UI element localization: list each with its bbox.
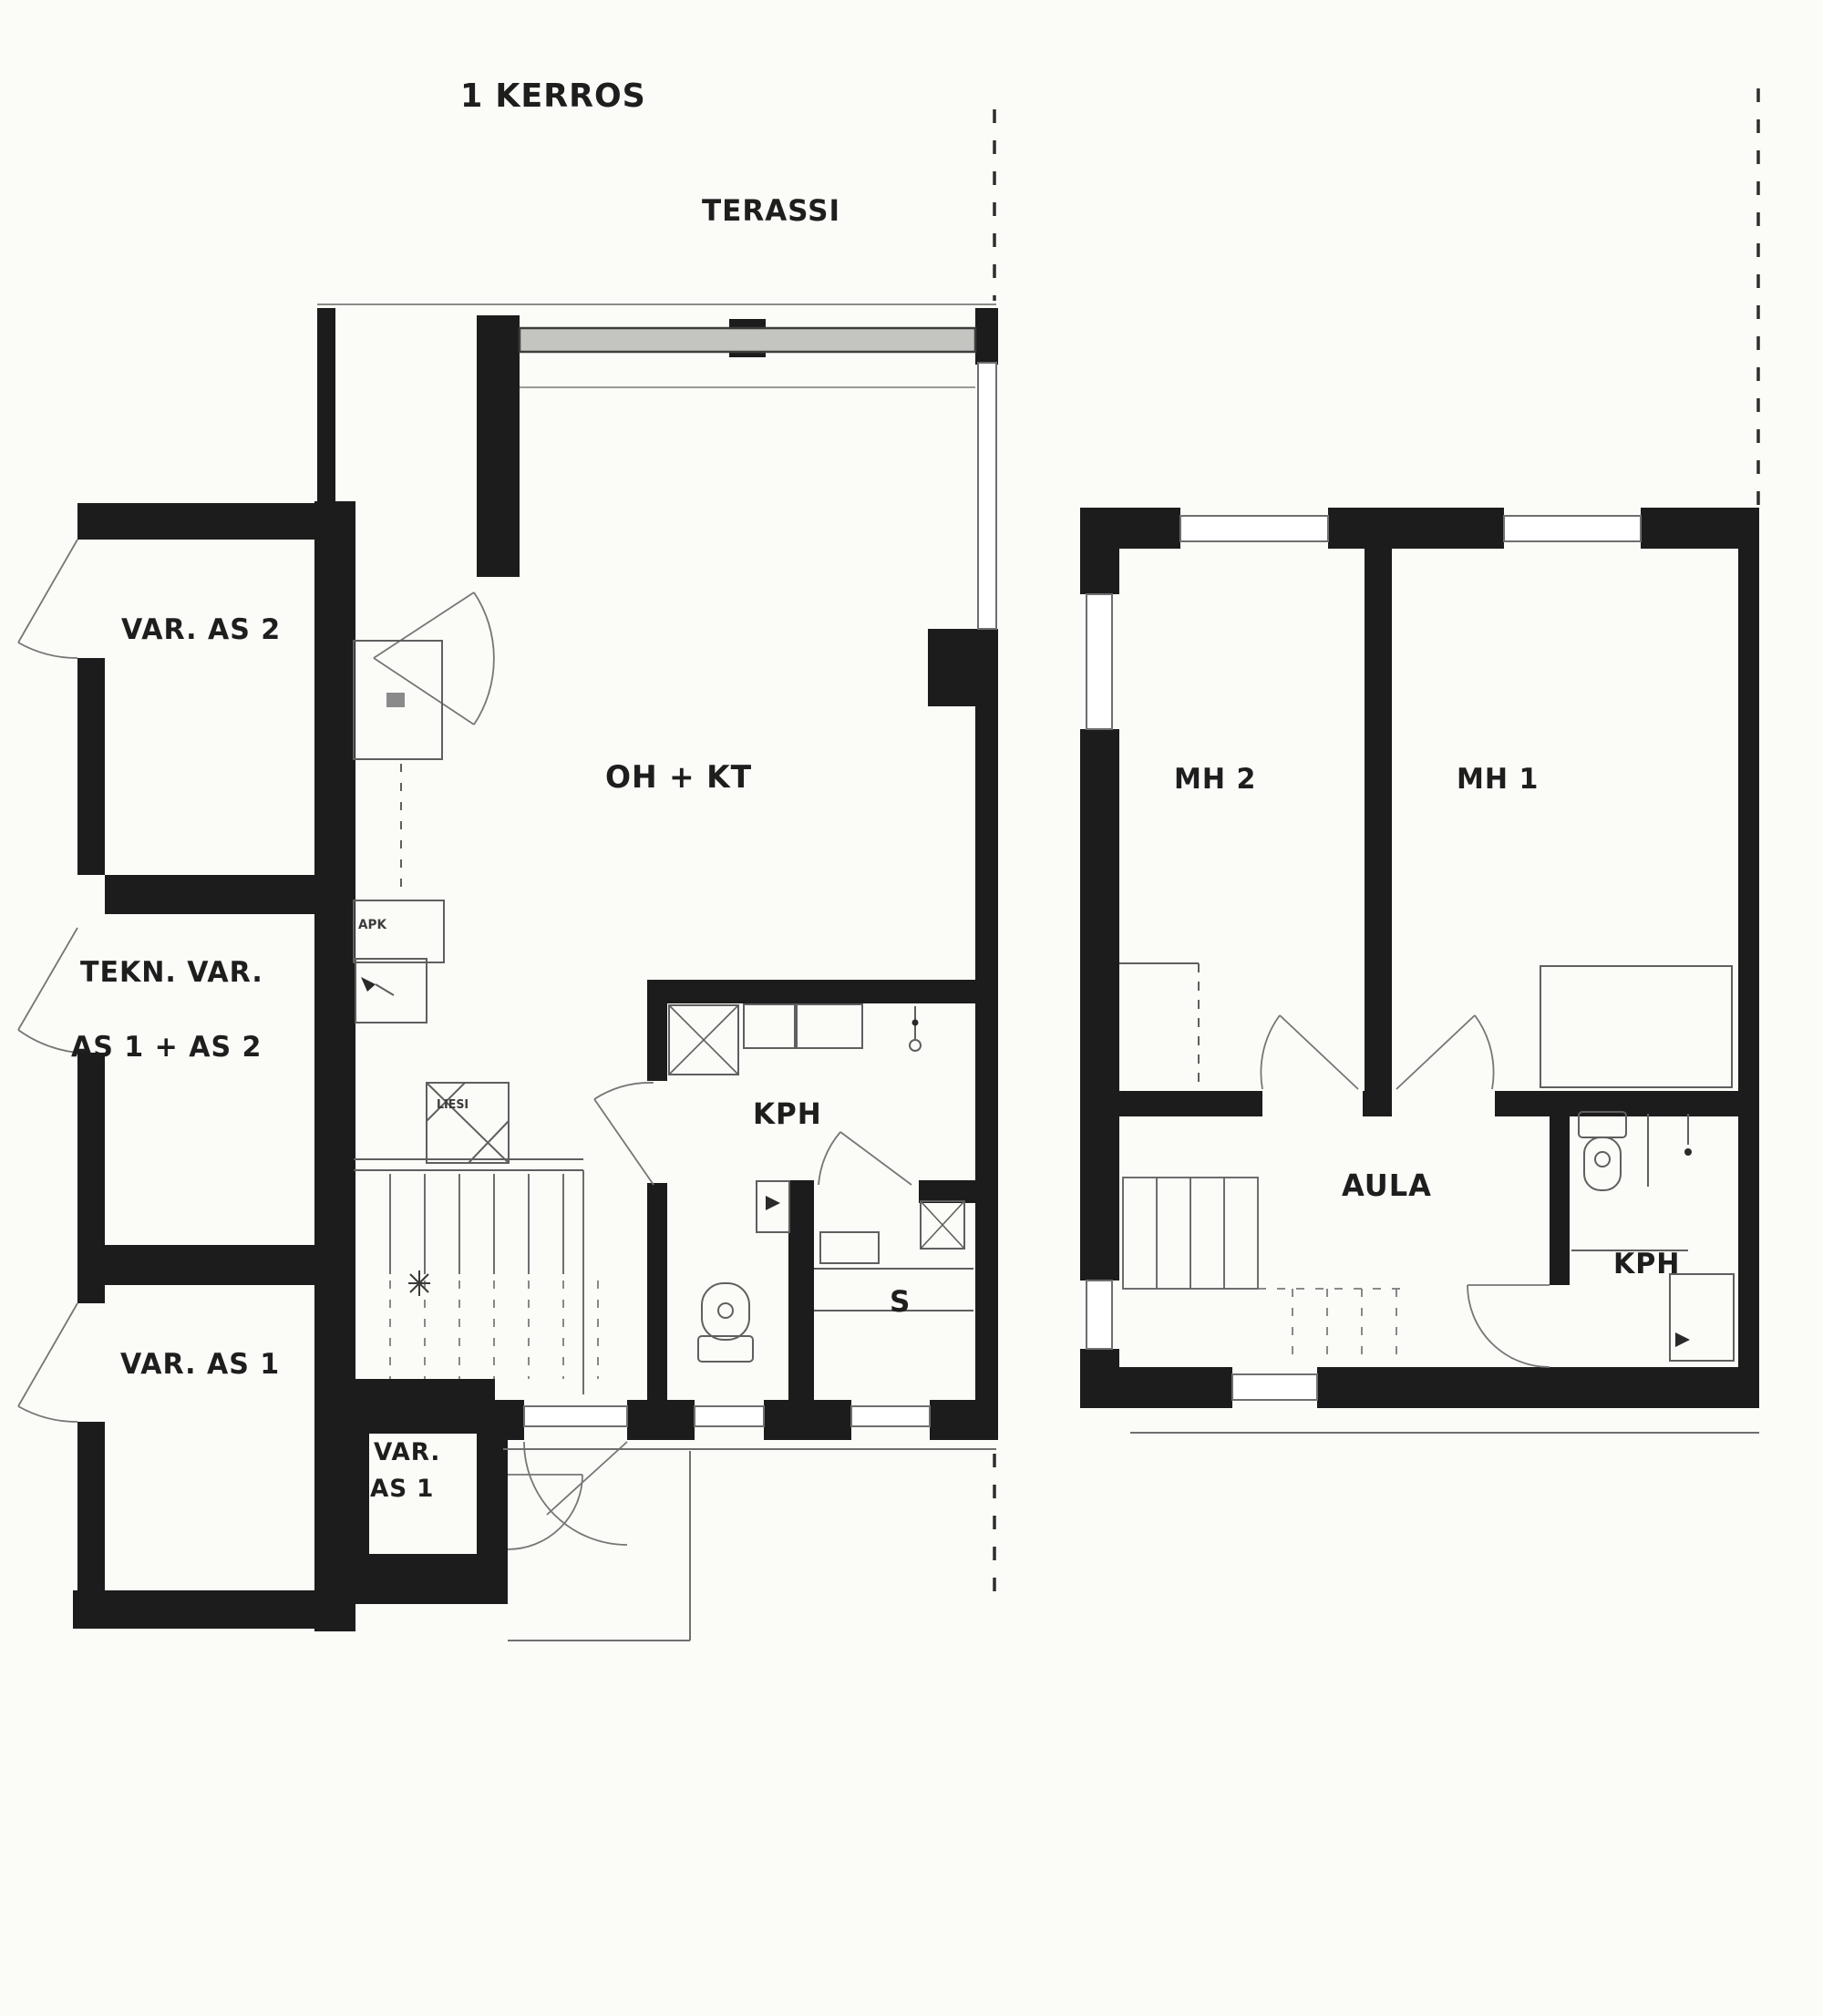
fridge-mark xyxy=(386,693,405,707)
bathroom-fixtures-floor2 xyxy=(1571,1112,1734,1361)
shower-icon xyxy=(1670,1274,1734,1361)
room-label-var-as2: VAR. AS 2 xyxy=(121,616,281,644)
sauna-bench xyxy=(820,1232,879,1263)
room-label-var-as1-small-line2: AS 1 xyxy=(370,1476,434,1501)
stairs-floor2 xyxy=(1123,1178,1408,1365)
room-label-tekn-var-line1: TEKN. VAR. xyxy=(80,959,263,987)
appliance-label-liesi: LIESI xyxy=(437,1099,469,1111)
page-title: 1 KERROS xyxy=(460,80,646,113)
toilet-icon xyxy=(698,1283,753,1362)
room-label-kph-floor2: KPH xyxy=(1613,1250,1680,1279)
room-label-sauna: S xyxy=(890,1287,911,1316)
room-label-var-as1-small-line1: VAR. xyxy=(374,1440,440,1465)
washer-icon-2 xyxy=(797,1004,862,1048)
kitchen-sink-icon xyxy=(355,959,427,1023)
faucet-icon xyxy=(1684,1114,1692,1156)
threshold-windows-floor1 xyxy=(524,1406,930,1426)
room-label-mh1: MH 1 xyxy=(1457,766,1539,794)
closets-floor2 xyxy=(1119,963,1732,1091)
washer-icon xyxy=(744,1004,795,1048)
appliance-label-apk: APK xyxy=(358,919,386,931)
faucet-icon xyxy=(361,977,376,992)
room-label-mh2: MH 2 xyxy=(1174,766,1256,794)
room-label-kph-floor1: KPH xyxy=(753,1099,822,1128)
room-label-aula: AULA xyxy=(1342,1170,1432,1200)
floor-plan-drawing xyxy=(0,0,1823,2016)
toilet-icon xyxy=(1579,1112,1626,1190)
room-label-oh-kt: OH + KT xyxy=(605,762,752,793)
stair-start-marker xyxy=(408,1270,430,1296)
room-label-terassi: TERASSI xyxy=(702,196,840,225)
bed-icon xyxy=(1540,966,1732,1087)
room-label-tekn-var-line2: AS 1 + AS 2 xyxy=(71,1034,262,1062)
glass-wall-window xyxy=(520,328,996,629)
floor-plan-sheet: 1 KERROS TERASSI VAR. AS 2 TEKN. VAR. AS… xyxy=(0,0,1823,2016)
faucet-icon xyxy=(910,1006,921,1051)
stairs-floor1 xyxy=(390,1170,598,1394)
porch-outline xyxy=(503,1449,996,1641)
room-label-var-as1: VAR. AS 1 xyxy=(120,1351,280,1379)
